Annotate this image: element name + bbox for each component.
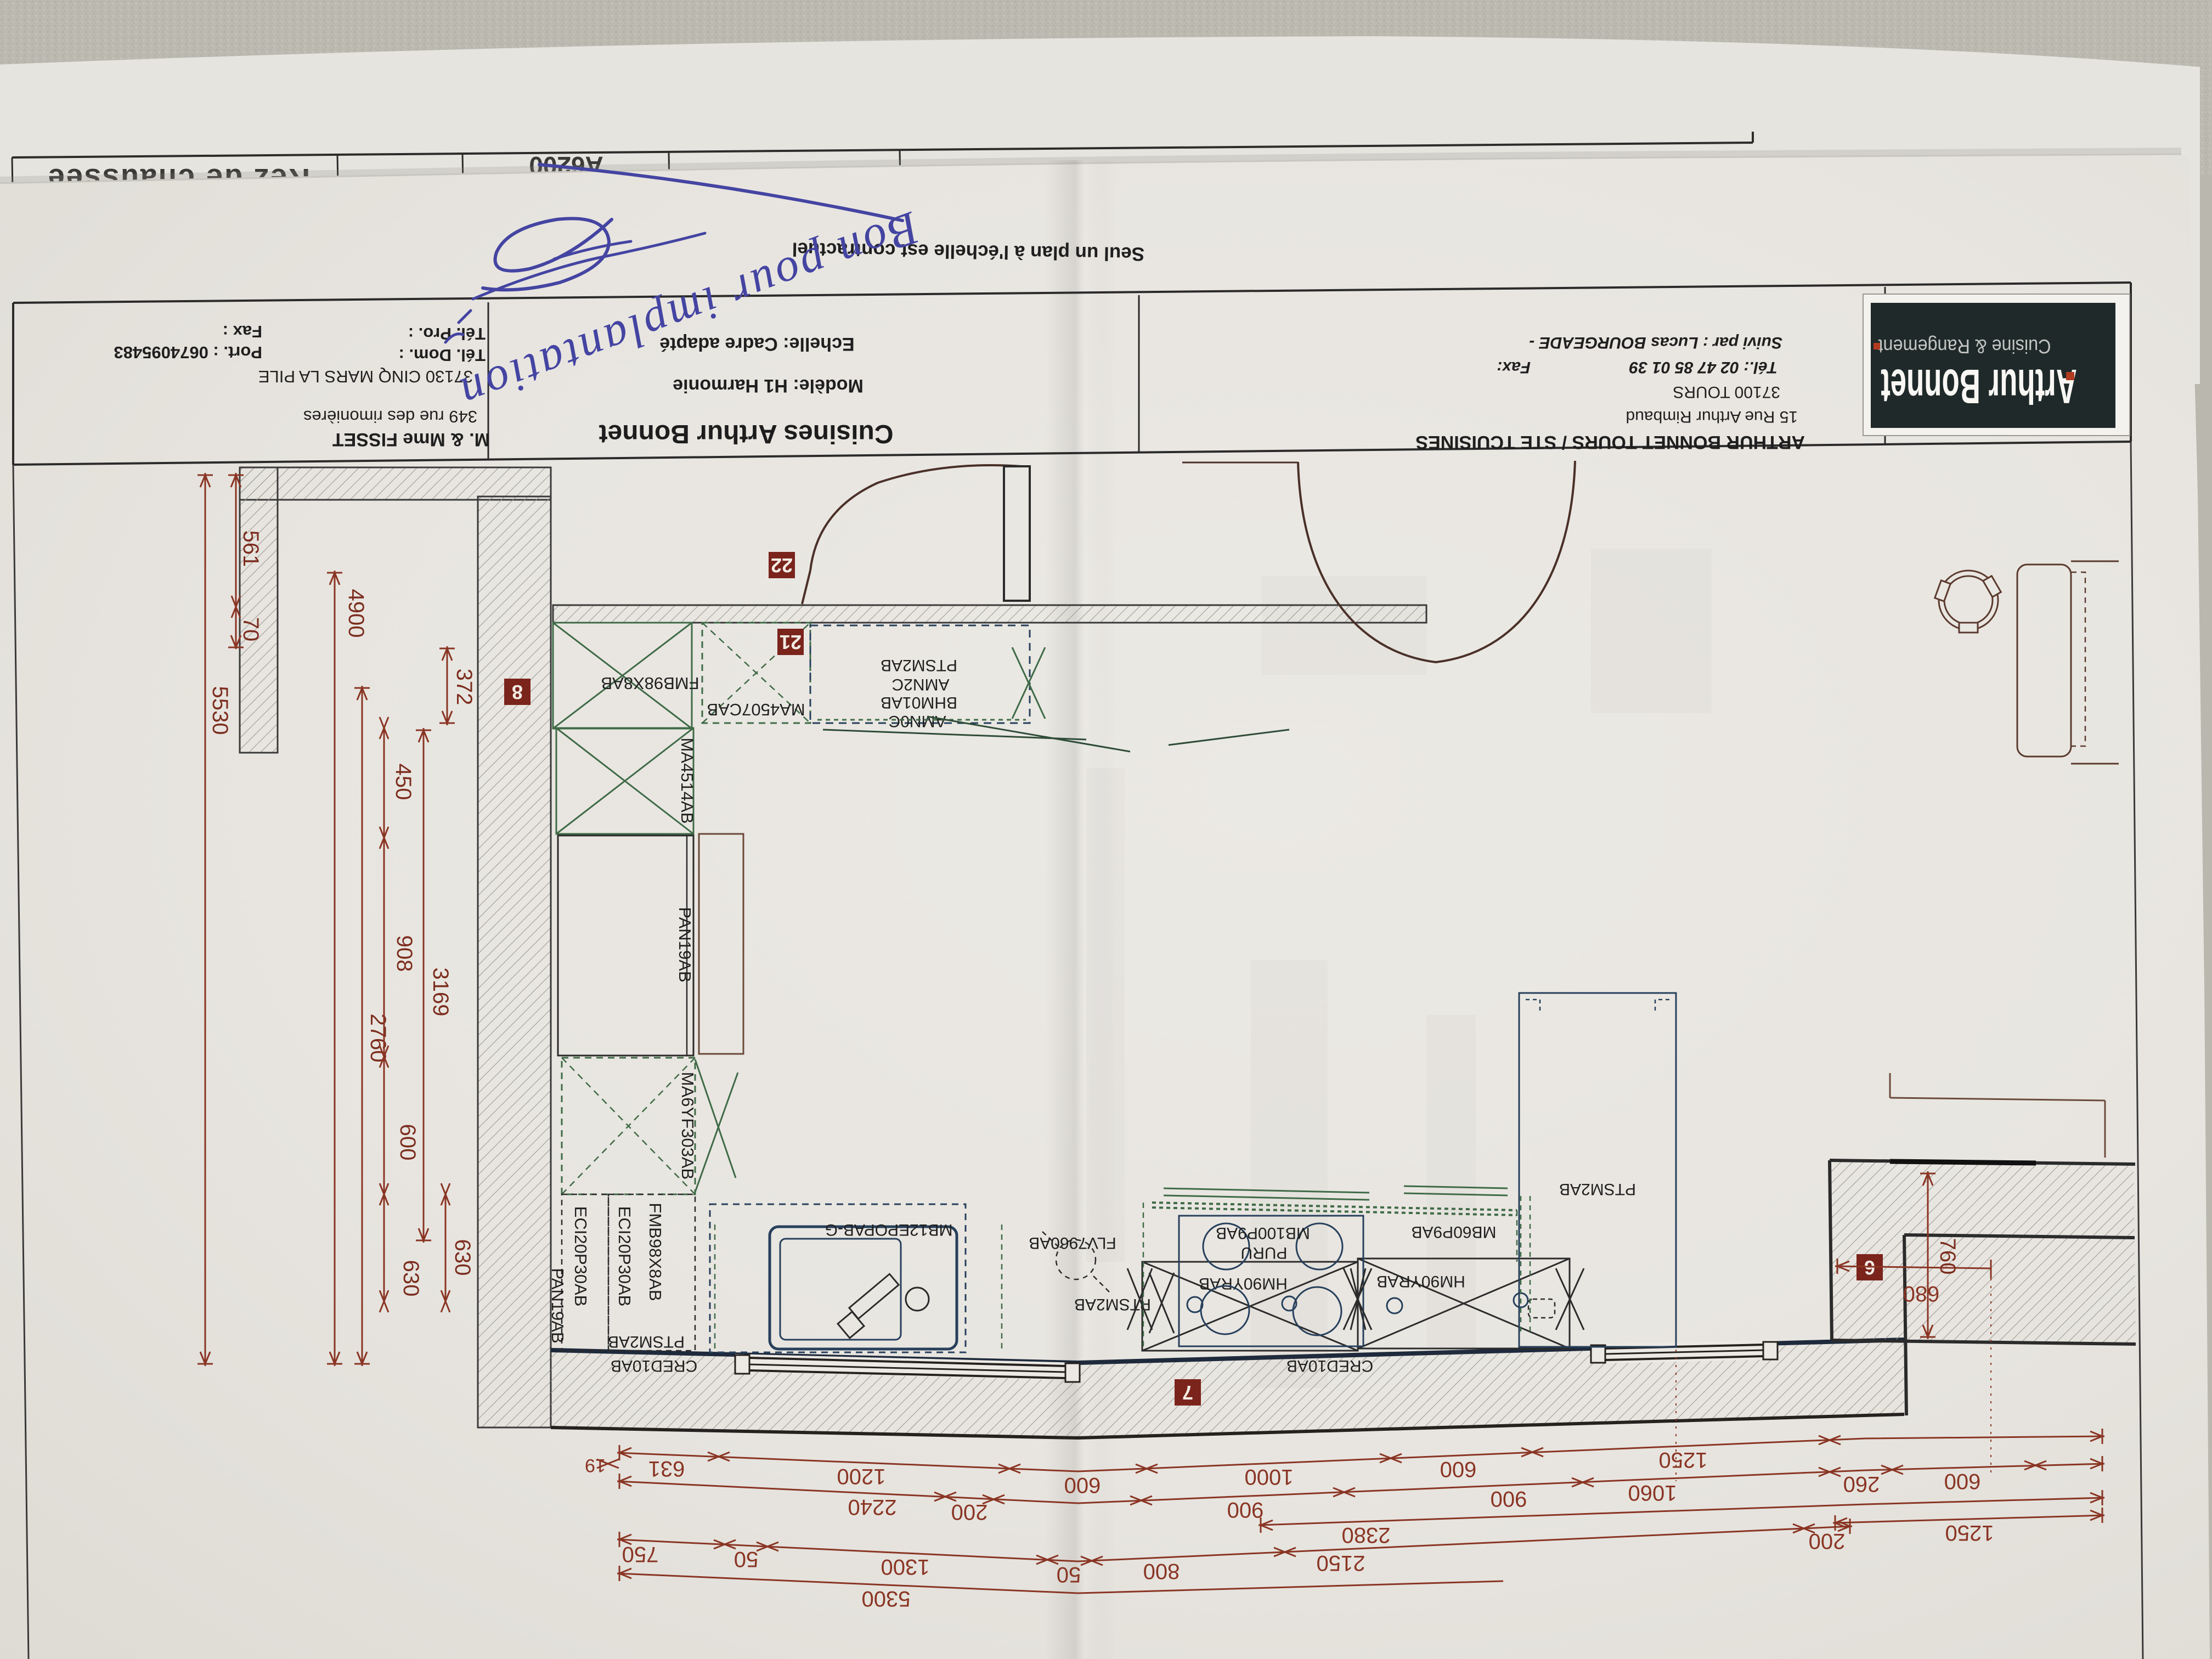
svg-text:37130 CINQ MARS LA PILE: 37130 CINQ MARS LA PILE — [258, 367, 473, 386]
svg-text:1250: 1250 — [1945, 1521, 1994, 1545]
svg-text:M. & Mme FISSET: M. & Mme FISSET — [332, 429, 490, 450]
svg-text:70: 70 — [239, 617, 263, 642]
svg-text:MB12EPOPAB-G: MB12EPOPAB-G — [825, 1221, 953, 1239]
svg-text:631: 631 — [648, 1457, 685, 1481]
svg-text:908: 908 — [392, 935, 416, 972]
svg-text:630: 630 — [399, 1260, 423, 1297]
svg-text:Port. : 0674095483: Port. : 0674095483 — [114, 343, 262, 362]
svg-text:600: 600 — [1440, 1457, 1477, 1481]
svg-text:8: 8 — [512, 681, 523, 703]
svg-text:1250: 1250 — [1659, 1448, 1708, 1472]
svg-text:1200: 1200 — [837, 1464, 886, 1488]
svg-text:600: 600 — [396, 1124, 420, 1161]
svg-text:1300: 1300 — [881, 1555, 930, 1579]
svg-text:22: 22 — [771, 554, 793, 577]
svg-text:750: 750 — [622, 1542, 659, 1566]
svg-text:15 Rue Arthur Rimbaud: 15 Rue Arthur Rimbaud — [1626, 408, 1798, 426]
svg-text:ECI20P30AB: ECI20P30AB — [571, 1206, 590, 1307]
svg-text:200: 200 — [1809, 1529, 1846, 1553]
svg-text:349 rue des rimonières: 349 rue des rimonières — [303, 407, 477, 426]
svg-text:PTSM2AB: PTSM2AB — [608, 1333, 685, 1351]
svg-text:Suivi par : Lucas BOURGEADE -: Suivi par : Lucas BOURGEADE - — [1529, 334, 1782, 352]
svg-text:5530: 5530 — [208, 686, 232, 735]
svg-text:MA4507CAB: MA4507CAB — [707, 700, 805, 719]
svg-text:AMN0C: AMN0C — [888, 712, 946, 730]
svg-text:2380: 2380 — [1342, 1523, 1391, 1547]
svg-text:PTSM2AB: PTSM2AB — [881, 656, 957, 674]
svg-text:FMB98X8AB: FMB98X8AB — [646, 1203, 665, 1301]
svg-text:600: 600 — [1944, 1469, 1981, 1493]
svg-text:Cuisines Arthur Bonnet: Cuisines Arthur Bonnet — [599, 419, 894, 448]
svg-text:21: 21 — [780, 631, 802, 653]
svg-text:3169: 3169 — [428, 968, 453, 1017]
svg-text:MA6YF303AB: MA6YF303AB — [678, 1072, 697, 1180]
svg-text:450: 450 — [391, 764, 415, 800]
svg-text:PAN19AB: PAN19AB — [675, 907, 695, 982]
svg-text:ARTHUR BONNET TOURS / STE TCUI: ARTHUR BONNET TOURS / STE TCUISINES — [1415, 432, 1805, 453]
svg-text:MA4514AB: MA4514AB — [678, 738, 697, 824]
svg-text:50: 50 — [734, 1547, 759, 1571]
svg-text:Arthur Bonnet: Arthur Bonnet — [1881, 359, 2077, 413]
svg-text:1060: 1060 — [1628, 1481, 1677, 1505]
svg-text:Tél.: 02 47 85 01 39: Tél.: 02 47 85 01 39 — [1629, 358, 1778, 376]
svg-text:37100 TOURS: 37100 TOURS — [1673, 383, 1780, 401]
svg-text:200: 200 — [951, 1500, 988, 1524]
svg-text:PAN19AB: PAN19AB — [548, 1268, 567, 1343]
svg-text:372: 372 — [452, 669, 476, 706]
svg-text:800: 800 — [1143, 1559, 1180, 1583]
svg-text:50: 50 — [1057, 1562, 1081, 1587]
svg-text:680: 680 — [1903, 1282, 1940, 1306]
svg-text:600: 600 — [1064, 1473, 1101, 1497]
svg-text:561: 561 — [239, 531, 263, 567]
svg-text:760: 760 — [1936, 1238, 1960, 1275]
svg-text:PTSM2AB: PTSM2AB — [1559, 1180, 1636, 1198]
svg-text:260: 260 — [1843, 1472, 1880, 1496]
svg-text:900: 900 — [1491, 1487, 1527, 1511]
svg-text:Modèle: H1 Harmonie: Modèle: H1 Harmonie — [673, 375, 864, 396]
svg-text:Cuisine & Rangement: Cuisine & Rangement — [1878, 335, 2051, 357]
svg-text:CRED10AB: CRED10AB — [611, 1357, 697, 1375]
svg-text:5300: 5300 — [862, 1587, 911, 1611]
svg-text:1000: 1000 — [1245, 1465, 1294, 1489]
svg-text:Fax :: Fax : — [223, 322, 262, 341]
svg-text:2150: 2150 — [1317, 1551, 1365, 1575]
svg-text:2240: 2240 — [848, 1495, 897, 1519]
svg-text:2760: 2760 — [366, 1014, 390, 1063]
svg-text:630: 630 — [450, 1239, 475, 1276]
svg-text:Fax:: Fax: — [1497, 358, 1531, 376]
svg-text:Tél. Dom. :: Tél. Dom. : — [399, 346, 486, 365]
svg-text:ECI20P30AB: ECI20P30AB — [615, 1206, 634, 1307]
svg-text:7: 7 — [1182, 1381, 1193, 1404]
svg-text:6: 6 — [1864, 1256, 1875, 1279]
svg-text:4900: 4900 — [344, 589, 368, 638]
svg-text:FMB98X8AB: FMB98X8AB — [601, 674, 699, 693]
svg-text:900: 900 — [1227, 1498, 1264, 1522]
svg-text:BHM01AB: BHM01AB — [881, 693, 957, 712]
svg-text:AMN2C: AMN2C — [891, 675, 949, 693]
